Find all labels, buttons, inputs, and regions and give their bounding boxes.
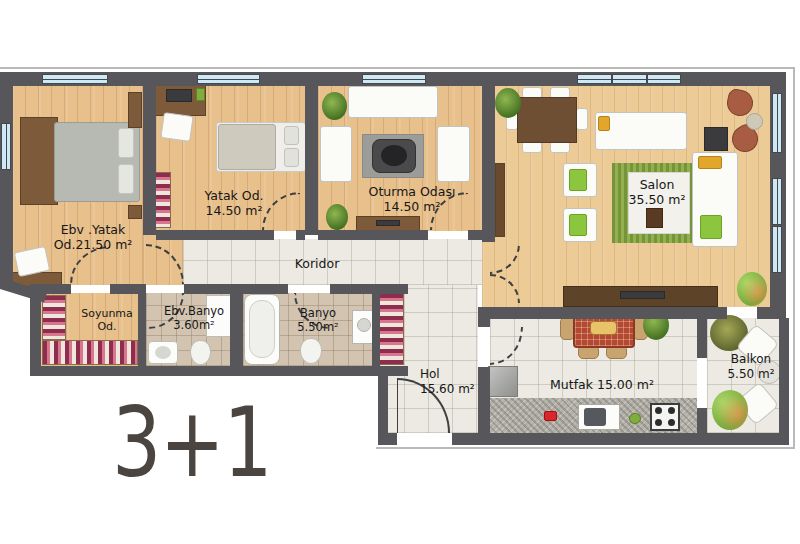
label-yatak: Yatak Od. 14.50 m² (204, 188, 263, 219)
window (772, 226, 782, 273)
room-area: 14.50 m² (206, 203, 263, 218)
nightstand (128, 205, 142, 219)
floor-plan: Ebv .Yatak Od.21.50 m² Yatak Od. 14.50 m… (0, 0, 800, 544)
contour-line-top (0, 67, 795, 69)
wall-banyo-divider (230, 293, 243, 366)
armchair-cushion (569, 169, 587, 191)
counter-item (629, 413, 641, 424)
stove (650, 403, 680, 431)
fridge (488, 366, 518, 397)
room-area: Od. (97, 320, 116, 333)
wall-soyunma-banyo (138, 293, 146, 366)
pillow (598, 116, 610, 131)
cabinet (495, 163, 505, 237)
room-area: 14.50 m² (384, 199, 441, 214)
pillow (284, 148, 299, 167)
toilet (190, 340, 211, 365)
coat-closet (378, 293, 404, 365)
plant (495, 88, 521, 118)
window (577, 74, 612, 84)
wall-salon-bottom (482, 307, 727, 319)
label-balkon: Balkon 5.50 m² (727, 352, 774, 381)
pillow (118, 128, 134, 158)
wall-salon-bottom (757, 307, 779, 319)
room-area: Od.21.50 m² (54, 237, 133, 252)
wall-hol-mutfak (478, 307, 490, 327)
washer-door (357, 318, 371, 332)
wall-corridor-bottom (41, 284, 71, 294)
wall-banyo-hol (372, 293, 380, 366)
label-salon: Salon 35.50 m² (629, 177, 686, 208)
room-area: 35.50 m² (629, 192, 686, 207)
burner (668, 419, 675, 426)
side-table (704, 127, 728, 151)
wall-oturma-bottom (318, 230, 428, 240)
label-ebv-banyo: Ebv.Banyo 3.60m² (164, 304, 224, 332)
window (772, 93, 782, 153)
bathtub-basin (249, 300, 275, 358)
wall-yatak-bottom (156, 230, 274, 240)
coffee-table-top (381, 145, 407, 166)
coffee-table (646, 208, 663, 228)
wall-hol-mutfak (478, 367, 490, 433)
plant (326, 204, 348, 230)
wall-bath-bottom (30, 366, 408, 376)
wardrobe (20, 117, 58, 205)
wall-outer-left (0, 72, 13, 284)
label-oturma: Oturma Odası 14.50 m² (369, 184, 456, 215)
room-name: Hol (420, 367, 440, 381)
window (362, 74, 426, 84)
chair (160, 112, 193, 142)
wall-oturma-salon (482, 86, 495, 242)
room-name: Soyunma (81, 307, 133, 320)
label-hol: Hol 15.60 m² (420, 367, 475, 396)
sofa (348, 86, 438, 118)
sink-basin (155, 346, 171, 359)
label-banyo: Banyo 5.50m² (297, 306, 338, 334)
armchair (437, 126, 470, 182)
sofa-cushion (700, 215, 722, 239)
window (1, 123, 11, 170)
room-area: 5.50m² (297, 320, 338, 334)
label-mutfak: Mutfak 15.00 m² (550, 377, 654, 392)
burner (655, 419, 662, 426)
blanket (218, 124, 276, 170)
dining-table (517, 97, 577, 143)
armchair (320, 126, 352, 182)
room-name: Salon (640, 177, 675, 192)
tv (376, 220, 400, 226)
room-name: Ebv .Yatak (61, 222, 126, 237)
counter-item (544, 411, 557, 421)
room-name: Banyo (300, 306, 336, 320)
wall-yatak-bottom (296, 230, 305, 240)
plan-type-label: 3+1 (112, 394, 271, 491)
round-table (746, 113, 763, 130)
room-name: Balkon (731, 352, 771, 366)
room-name: Oturma Odası (369, 184, 456, 199)
room-area: 5.50 m² (727, 367, 774, 381)
plant (712, 390, 748, 430)
wall-yatak-oturma (305, 86, 318, 235)
food-tray (590, 321, 617, 335)
burner (655, 407, 662, 414)
pillow (284, 126, 299, 145)
burner (668, 407, 675, 414)
plant (322, 92, 347, 120)
pillow (118, 164, 134, 194)
window (612, 74, 647, 84)
label-koridor: Koridor (295, 256, 340, 271)
wall-art (196, 88, 205, 101)
pillow (698, 156, 722, 169)
room-name: Yatak Od. (204, 188, 263, 203)
wall-balkon-right (779, 318, 789, 445)
wall-outer-bottom (452, 433, 786, 445)
wall-oturma-bottom (468, 230, 482, 240)
armchair-cushion (569, 214, 587, 236)
room-name: Koridor (295, 256, 340, 271)
wall-mutfak-balkon (697, 408, 707, 433)
window (772, 178, 782, 225)
wall-soyunma-left (30, 284, 41, 376)
room-name: Mutfak 15.00 m² (550, 377, 654, 392)
window (647, 74, 681, 84)
wardrobe-rack (42, 340, 138, 365)
label-soyunma: Soyunma Od. (81, 307, 133, 334)
window (197, 74, 260, 84)
sink-basin (584, 408, 606, 426)
wall-ebv-yatak (143, 86, 156, 235)
wall-outer-bottom (378, 433, 397, 445)
wall-hol-left (378, 376, 388, 433)
window (42, 74, 108, 84)
plant (737, 272, 767, 306)
tv (620, 291, 665, 299)
room-area: 3.60m² (173, 318, 214, 332)
room-area: 15.60 m² (420, 382, 475, 396)
contour-line-right (793, 67, 795, 449)
contour-line-bottom (376, 447, 795, 449)
wall-mutfak-balkon (697, 318, 707, 358)
wall-corridor-bottom (330, 284, 408, 294)
computer-monitor (166, 89, 192, 102)
dresser (128, 92, 142, 128)
dining-chair (576, 108, 588, 130)
label-ebv-yatak: Ebv .Yatak Od.21.50 m² (54, 222, 133, 253)
wardrobe-rack (42, 295, 66, 340)
room-name: Ebv.Banyo (164, 304, 224, 318)
toilet (300, 338, 322, 364)
